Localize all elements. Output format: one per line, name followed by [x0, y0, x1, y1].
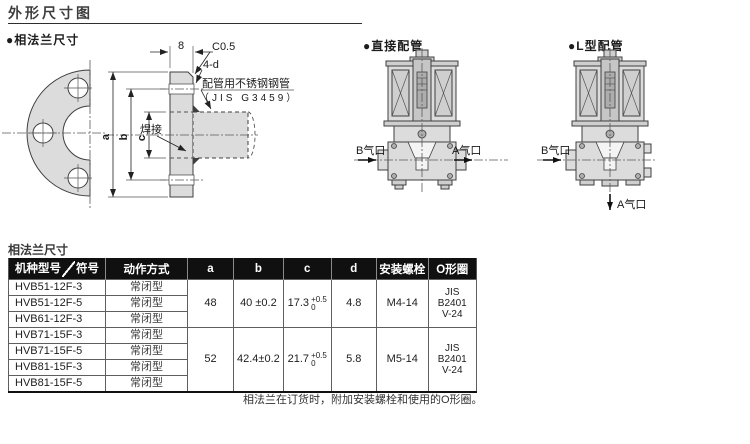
model-cell: HVB71-15F-5 — [9, 344, 106, 360]
dim-d-cell: 4.8 — [331, 280, 376, 328]
model-cell: HVB61-12F-3 — [9, 312, 106, 328]
dim-a-cell: 48 — [188, 280, 234, 328]
holes-label: 4-d — [203, 59, 219, 71]
table-row: HVB51-12F-3 常闭型 48 40 ±0.2 17.3+0.50 4.8… — [9, 280, 477, 296]
foot-right — [438, 180, 452, 185]
body-tab-lower — [644, 168, 651, 177]
flange-front-view — [2, 60, 106, 210]
model-cell: HVB81-15F-3 — [9, 360, 106, 376]
oring-cell: JIS B2401V-24 — [428, 328, 476, 393]
action-cell: 常闭型 — [106, 312, 188, 328]
col-header-c: c — [283, 258, 331, 280]
dim-c-cell: 21.7+0.50 — [283, 328, 331, 393]
dim-a-label: a — [100, 133, 112, 140]
col-header-b: b — [234, 258, 284, 280]
coil-winding-left — [580, 70, 597, 116]
dim-a-cell: 52 — [188, 328, 234, 393]
action-cell: 常闭型 — [106, 328, 188, 344]
chamfer-label: C0.5 — [212, 41, 235, 53]
pipe-note-line1: 配管用不锈钢钢管 — [202, 76, 290, 90]
col-header-bolt: 安装螺栓 — [376, 258, 428, 280]
dim-b-cell: 40 ±0.2 — [234, 280, 284, 328]
solenoid-valve-section — [566, 50, 651, 186]
action-cell: 常闭型 — [106, 280, 188, 296]
c-tolerance: +0.50 — [311, 352, 327, 368]
l-type-piping-diagram: B气口 A气口 — [535, 46, 715, 231]
action-cell: 常闭型 — [106, 344, 188, 360]
bolt-cell: M4-14 — [376, 280, 428, 328]
coil-winding-right — [623, 70, 640, 116]
page-title: 外形尺寸图 — [8, 3, 93, 23]
weld-fillet-bottom — [193, 158, 200, 165]
port-b-label: B气口 — [356, 143, 385, 157]
foot-left — [580, 180, 594, 185]
header-model-label: 机种型号 — [15, 263, 61, 275]
flange-dimension-drawing: a b c 8 C0.5 4-d 配管用 — [0, 40, 300, 245]
col-header-a: a — [188, 258, 234, 280]
port-b-label: B气口 — [541, 143, 570, 157]
c-tolerance: +0.50 — [311, 296, 327, 312]
bolt-cell: M5-14 — [376, 328, 428, 393]
action-cell: 常闭型 — [106, 376, 188, 393]
catalog-page: 外形尺寸图 ●相法兰尺寸 ●直接配管 ●L型配管 — [0, 0, 750, 444]
coil-winding-right — [435, 70, 452, 116]
dim-b-cell: 42.4±0.2 — [234, 328, 284, 393]
table-row: HVB71-15F-3 常闭型 52 42.4±0.2 21.7+0.50 5.… — [9, 328, 477, 344]
model-cell: HVB81-15F-5 — [9, 376, 106, 393]
col-header-oring: O形圈 — [428, 258, 476, 280]
port-a-label: A气口 — [617, 197, 646, 211]
col-header-action: 动作方式 — [106, 258, 188, 280]
dim-c-cell: 17.3+0.50 — [283, 280, 331, 328]
action-cell: 常闭型 — [106, 360, 188, 376]
dim-b-label: b — [118, 133, 130, 140]
weld-fillet-top — [193, 105, 200, 112]
pipe-note-callout: 配管用不锈钢钢管 （JIS G3459） — [199, 76, 299, 109]
diagonal-divider — [62, 261, 75, 277]
port-a-label: A气口 — [452, 143, 481, 157]
dim-d-cell: 5.8 — [331, 328, 376, 393]
model-cell: HVB51-12F-3 — [9, 280, 106, 296]
header-symbol-label: 符号 — [76, 263, 99, 275]
table-caption: 相法兰尺寸 — [8, 241, 68, 258]
model-cell: HVB71-15F-3 — [9, 328, 106, 344]
pipe-note-line2: （JIS G3459） — [199, 92, 299, 104]
dim-thickness-label: 8 — [178, 40, 184, 52]
col-header-d: d — [331, 258, 376, 280]
c-value: 17.3 — [288, 298, 309, 310]
table-header-row: 机种型号符号 动作方式 a b c d 安装螺栓 O形圈 — [9, 258, 477, 280]
title-rule — [8, 23, 362, 24]
foot-right — [626, 180, 640, 185]
coil-winding-left — [392, 70, 409, 116]
model-cell: HVB51-12F-5 — [9, 296, 106, 312]
c-value: 21.7 — [288, 354, 309, 366]
direct-piping-diagram: B气口 A气口 — [352, 46, 510, 198]
oring-cell: JIS B2401V-24 — [428, 280, 476, 328]
weld-label: 焊接 — [140, 122, 162, 136]
body-tab-upper — [644, 144, 651, 153]
col-header-model-symbol: 机种型号符号 — [9, 258, 106, 280]
foot-left — [392, 180, 406, 185]
flange-spec-table: 机种型号符号 动作方式 a b c d 安装螺栓 O形圈 HVB51-12F-3… — [8, 258, 477, 393]
action-cell: 常闭型 — [106, 296, 188, 312]
table-note: 相法兰在订货时，附加安装螺栓和使用的O形圈。 — [243, 391, 483, 407]
